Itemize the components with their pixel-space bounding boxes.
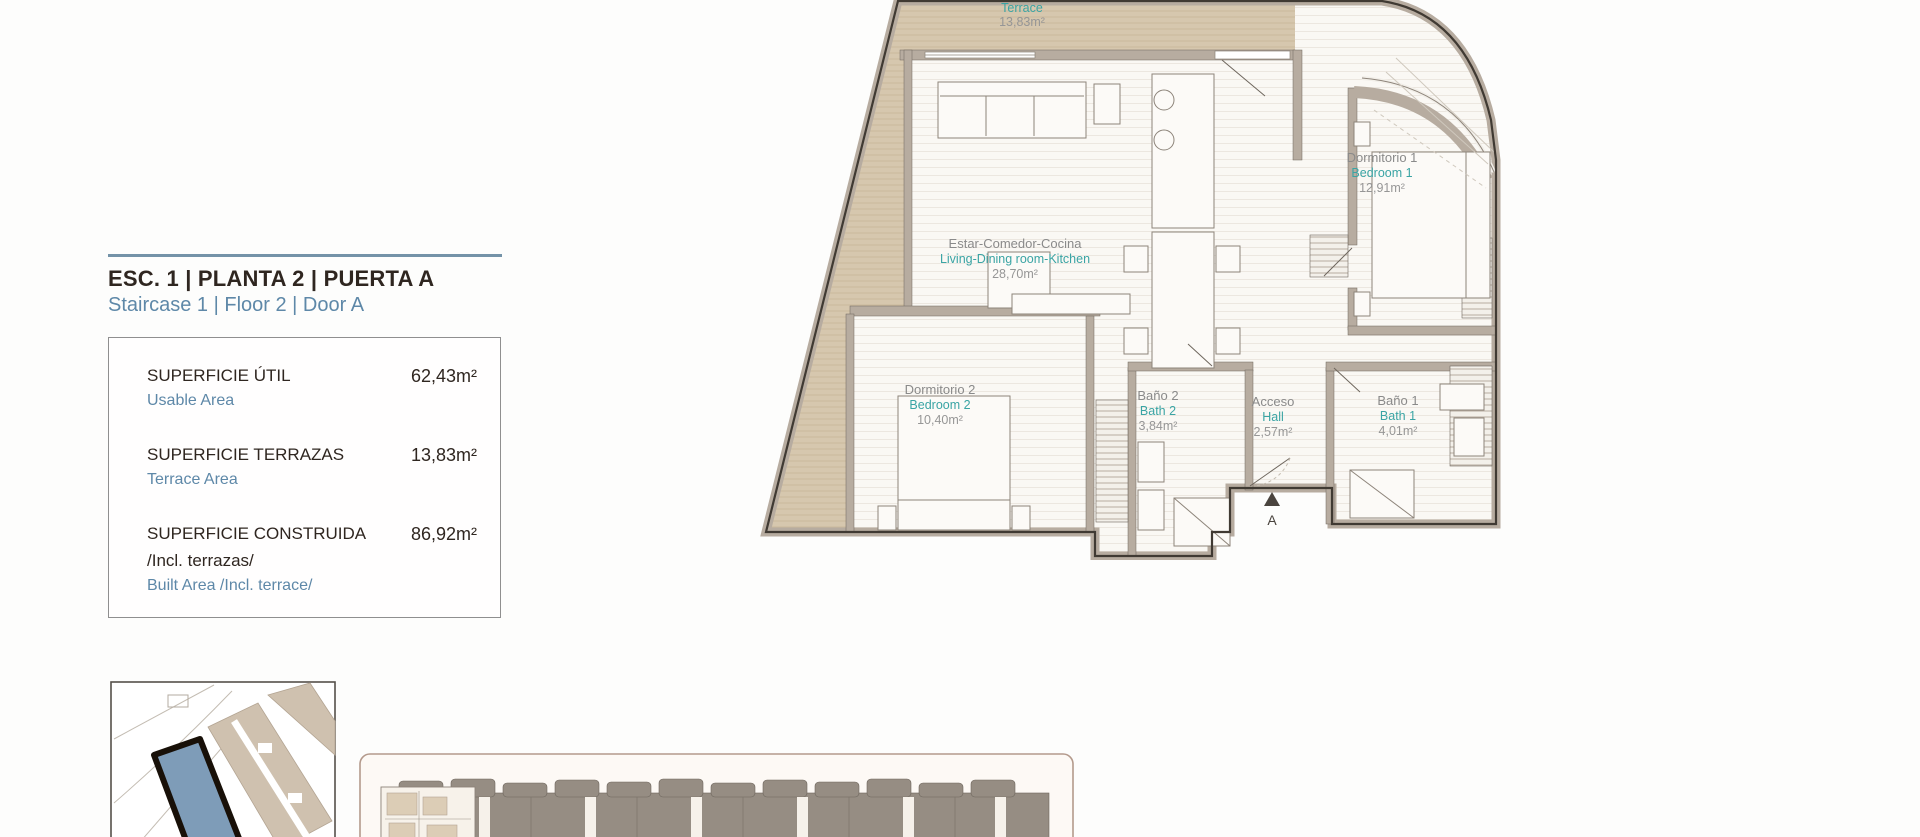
apartment-floor-plan: Terrace 13,83m² Estar-Comedor-Cocina Liv… <box>750 0 1510 560</box>
row-value: 62,43m² <box>411 366 477 387</box>
bath2-label-en: Bath 2 <box>1140 404 1176 418</box>
bath2-area: 3,84m² <box>1139 419 1178 433</box>
page-title: ESC. 1 | PLANTA 2 | PUERTA A <box>108 266 434 292</box>
bath1-label-en: Bath 1 <box>1380 409 1416 423</box>
row-label-en: Built Area /Incl. terrace/ <box>147 577 477 595</box>
site-plan-thumbnail <box>110 681 336 837</box>
bedroom1-area: 12,91m² <box>1359 181 1405 195</box>
entrance-arrow-icon <box>1264 492 1280 506</box>
living-area: 28,70m² <box>992 267 1038 281</box>
entrance-letter: A <box>1267 512 1277 528</box>
brochure-page: ESC. 1 | PLANTA 2 | PUERTA A Staircase 1… <box>0 0 1920 837</box>
living-label-en: Living-Dining room-Kitchen <box>940 252 1090 266</box>
row-label-en: Usable Area <box>147 392 477 410</box>
area-summary-table: SUPERFICIE ÚTIL Usable Area 62,43m² SUPE… <box>108 337 501 618</box>
building-outline <box>381 779 1049 837</box>
terrace-label-en: Terrace <box>1001 1 1043 15</box>
bath1-label-es: Baño 1 <box>1377 393 1418 408</box>
bedroom1-label-en: Bedroom 1 <box>1351 166 1412 180</box>
bedroom2-label-es: Dormitorio 2 <box>905 382 976 397</box>
table-row: SUPERFICIE ÚTIL Usable Area 62,43m² <box>147 366 477 410</box>
row-label-es2: /Incl. terrazas/ <box>147 551 477 571</box>
row-value: 86,92m² <box>411 524 477 545</box>
accent-rule <box>108 254 502 257</box>
row-value: 13,83m² <box>411 445 477 466</box>
entrance-marker: A <box>1264 492 1280 528</box>
hall-label-es: Acceso <box>1252 394 1295 409</box>
bedroom1-label-es: Dormitorio 1 <box>1347 150 1418 165</box>
page-subtitle: Staircase 1 | Floor 2 | Door A <box>108 294 364 317</box>
terrace-area: 13,83m² <box>999 15 1045 29</box>
living-label-es: Estar-Comedor-Cocina <box>949 236 1083 251</box>
bath2-label-es: Baño 2 <box>1137 388 1178 403</box>
bath1-area: 4,01m² <box>1379 424 1418 438</box>
hall-area: 2,57m² <box>1254 425 1293 439</box>
bedroom2-label-en: Bedroom 2 <box>909 398 970 412</box>
row-label-en: Terrace Area <box>147 471 477 489</box>
hall-label-en: Hall <box>1262 410 1284 424</box>
table-row: SUPERFICIE TERRAZAS Terrace Area 13,83m² <box>147 445 477 489</box>
floor-overview-strip <box>359 753 1075 837</box>
highlighted-unit <box>381 787 475 837</box>
bedroom2-area: 10,40m² <box>917 413 963 427</box>
table-row: SUPERFICIE CONSTRUIDA /Incl. terrazas/ B… <box>147 524 477 595</box>
